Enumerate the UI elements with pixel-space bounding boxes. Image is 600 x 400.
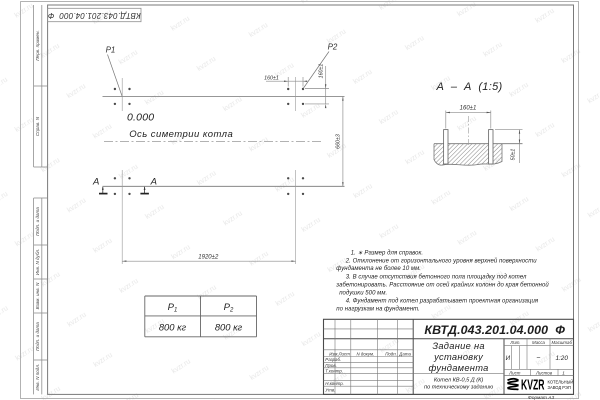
svg-text:Пров.: Пров. (325, 363, 337, 368)
svg-text:50±1: 50±1 (511, 149, 517, 161)
svg-text:подушки 500 мм.: подушки 500 мм. (339, 290, 387, 296)
svg-text:А: А (92, 176, 99, 187)
svg-text:160±1: 160±1 (318, 64, 324, 79)
svg-text:Масштаб: Масштаб (551, 340, 572, 345)
svg-text:Н.контр.: Н.контр. (325, 381, 344, 386)
svg-text:Подп. и дата: Подп. и дата (35, 322, 40, 351)
svg-text:А – А (1:5): А – А (1:5) (436, 81, 503, 93)
svg-text:Ось симетрии котла: Ось симетрии котла (129, 129, 233, 140)
svg-text:Т.контр.: Т.контр. (325, 369, 343, 374)
svg-text:Взам. инв. N: Взам. инв. N (35, 282, 40, 309)
svg-text:Листов: Листов (535, 370, 553, 375)
svg-text:фундамента не более 10 мм.: фундамента не более 10 мм. (336, 266, 421, 272)
svg-text:800 кг: 800 кг (215, 322, 243, 333)
svg-text:P2: P2 (328, 42, 338, 51)
svg-text:–: – (536, 354, 541, 361)
svg-text:800 кг: 800 кг (159, 322, 187, 333)
svg-text:Изм.Лист: Изм.Лист (329, 351, 350, 356)
svg-text:Дата: Дата (398, 351, 411, 356)
svg-text:Инв. N дубл.: Инв. N дубл. (35, 249, 40, 276)
svg-text:P1: P1 (106, 45, 116, 54)
svg-text:Масса: Масса (532, 340, 546, 345)
svg-text:Котел КВ‑0,5 Д (К): Котел КВ‑0,5 Д (К) (434, 378, 484, 384)
svg-text:фундамента: фундамента (429, 363, 489, 373)
svg-text:по техническому заданию: по техническому заданию (424, 385, 494, 391)
svg-text:2. Отклонение от горизонтальн: 2. Отклонение от горизонтального уровня … (345, 257, 537, 264)
svg-text:Лист: Лист (508, 370, 521, 375)
svg-text:Подп.: Подп. (385, 351, 397, 356)
svg-text:Инв. N подл.: Инв. N подл. (35, 364, 40, 391)
svg-text:KVZR: KVZR (521, 377, 545, 394)
svg-text:Формат А3: Формат А3 (528, 395, 555, 400)
svg-text:160±1: 160±1 (460, 106, 477, 112)
svg-text:по нагрузкам на фундамент.: по нагрузкам на фундамент. (336, 306, 420, 312)
svg-text:Задание на: Задание на (432, 341, 485, 351)
svg-text:Перв. примен.: Перв. примен. (35, 30, 40, 61)
svg-text:КВТД.043.201.04.000 Ф: КВТД.043.201.04.000 Ф (47, 11, 140, 20)
svg-text:1920±2: 1920±2 (198, 255, 219, 261)
svg-text:Разраб.: Разраб. (325, 357, 341, 362)
svg-text:Утв.: Утв. (325, 388, 335, 393)
svg-text:Подп. и дата: Подп. и дата (35, 207, 40, 236)
svg-text:4. Фундамент под котел разраб: 4. Фундамент под котел разрабатывает про… (346, 299, 539, 305)
svg-text:И: И (506, 355, 511, 362)
svg-text:3. В случае отсутствия бетонн: 3. В случае отсутствия бетонного пола пл… (346, 275, 527, 281)
svg-text:забетонировать. Расстояние от: забетонировать. Расстояние от осей крайн… (335, 281, 549, 288)
svg-text:660±3: 660±3 (335, 134, 341, 149)
svg-text:160±1: 160±1 (264, 75, 279, 81)
svg-text:КВТД.043.201.04.000 Ф: КВТД.043.201.04.000 Ф (424, 323, 565, 337)
svg-text:ЗАВОД РЭП: ЗАВОД РЭП (548, 385, 571, 390)
svg-text:N докум.: N докум. (357, 351, 375, 356)
svg-text:1: 1 (562, 370, 565, 375)
svg-text:КОТЕЛЬНЫЙ: КОТЕЛЬНЫЙ (548, 379, 574, 384)
svg-text:0.000: 0.000 (127, 112, 154, 124)
svg-text:Лит.: Лит. (509, 340, 520, 345)
svg-text:А: А (150, 176, 157, 187)
svg-text:установку: установку (433, 352, 484, 362)
svg-text:1. ∗ Размер для справок.: 1. ∗ Размер для справок. (351, 251, 423, 257)
svg-text:Справ. N: Справ. N (35, 116, 40, 136)
svg-text:1:20: 1:20 (555, 355, 568, 362)
